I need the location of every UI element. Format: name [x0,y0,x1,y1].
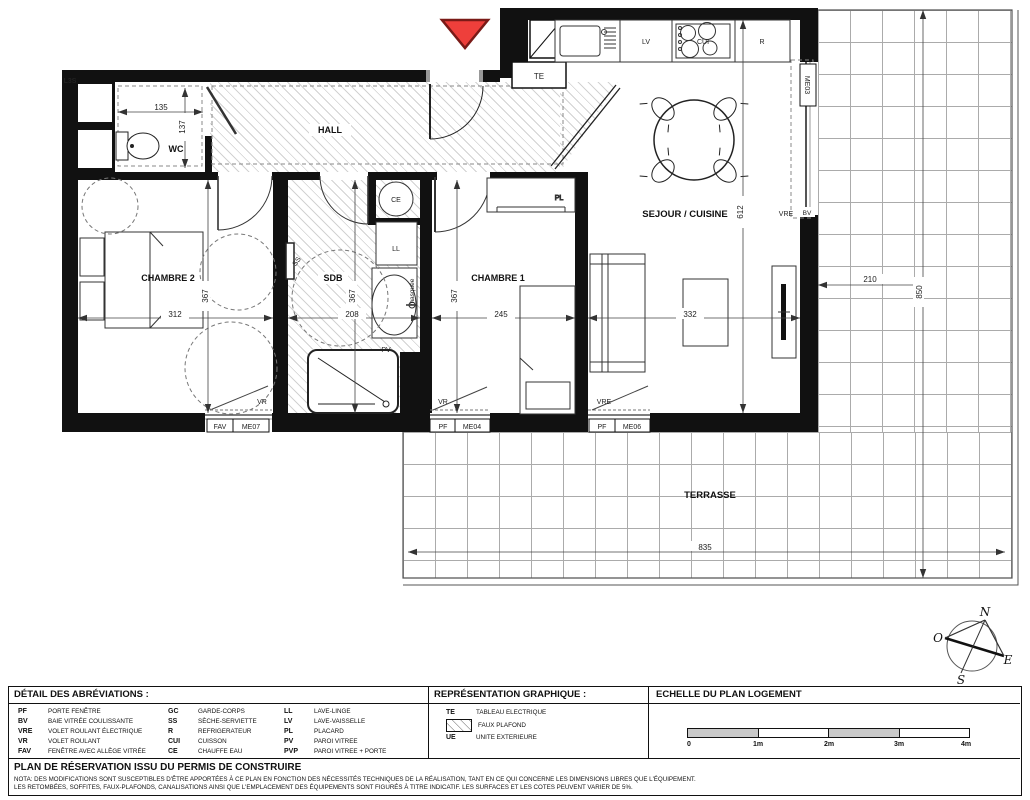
pl-label: PL [555,195,564,202]
abbrev-desc: GARDE-CORPS [198,708,245,715]
faux-plafond-swatch [446,719,472,732]
abbrev-code: LV [284,718,314,725]
ue-desc: UNITE EXTERIEURE [476,734,537,741]
interior-doors [207,87,490,232]
graphic-row-te: TETABLEAU ELECTRIQUE [446,707,546,718]
abbrev-desc: PAROI VITREE [314,738,358,745]
abbrev-title: DÉTAIL DES ABRÉVIATIONS : [14,689,149,700]
entrance-door [426,70,483,139]
abbrev-code: R [168,728,198,735]
te-label: TE [534,72,544,81]
dim-wc-height: 137 [178,120,187,134]
abbrev-row: SSSÈCHE-SERVIETTE [168,717,257,727]
faux-plafond-outlines [118,60,813,218]
dim-ch1-width: 245 [494,310,508,319]
scale-tick-3m: 3m [894,741,904,748]
abbrev-row: LLLAVE-LINGE [284,707,386,717]
abbrev-desc: VOLET ROULANT ÉLECTRIQUE [48,728,142,735]
w1-type: FAV [214,424,227,431]
abbrev-row: VREVOLET ROULANT ÉLECTRIQUE [18,727,146,737]
abbrev-code: CE [168,748,198,755]
abbrev-code: BV [18,718,48,725]
abbrev-desc: CUISSON [198,738,227,745]
chair [704,148,748,192]
abbrev-code: FAV [18,748,48,755]
abbrev-row: CUICUISSON [168,736,257,746]
compass-n: N [979,605,991,619]
te-abbr: TE [446,709,476,716]
scale-tick-1m: 1m [753,741,763,748]
abbrev-row: CECHAUFFE EAU [168,746,257,756]
abbrev-col1: PFPORTE FENÊTRE BVBAIE VITRÉE COULISSANT… [18,707,146,756]
abbrev-code: PF [18,708,48,715]
bay-vre-label: VRE [779,211,794,218]
scale-tick-0: 0 [687,741,691,748]
dining-table [640,88,749,191]
dim-sejour-height: 612 [736,205,745,219]
floor-plan-page: TE FAV ME07 VR [0,0,1030,800]
scale-bar [687,728,970,738]
abbrev-desc: PORTE FENÊTRE [48,708,101,715]
sejour-door [551,85,620,169]
graphic-row-fp: FAUX PLAFOND [446,718,546,732]
abbrev-code: GC [168,708,198,715]
abbrev-row: VRVOLET ROULANT [18,736,146,746]
dim-sdb-height: 367 [348,289,357,303]
w2-vr: VR [438,399,448,406]
abbrev-desc: LAVE-VAISSELLE [314,718,365,725]
abbrev-desc: CHAUFFE EAU [198,748,242,755]
dim-sdb-width: 208 [345,310,359,319]
abbrev-desc: LAVE-LINGE [314,708,351,715]
abbrev-code: VR [18,738,48,745]
w3-code: ME06 [623,424,641,431]
lv-label: LV [642,39,650,46]
chair [640,148,684,192]
bay-label: ME03 [803,76,810,94]
shower [308,350,398,413]
dim-ch2-width: 312 [168,310,182,319]
abbrev-code: VRE [18,728,48,735]
abbrev-row: PVPAROI VITREE [284,736,386,746]
ce-label: CE [391,197,401,204]
abbrev-row: RREFRIGERATEUR [168,727,257,737]
abbrev-row: PLPLACARD [284,727,386,737]
ll-label: LL [392,246,400,253]
graphic-items: TETABLEAU ELECTRIQUE FAUX PLAFOND UEUNIT… [446,707,546,743]
abbrev-desc: VOLET ROULANT [48,738,100,745]
sofa [590,254,645,372]
abbrev-row: FAVFENÊTRE AVEC ALLÈGE VITRÉE [18,746,146,756]
toilet [116,132,159,160]
dim-terrace-width: 835 [698,543,712,552]
scale-tick-4m: 4m [961,741,971,748]
tv-stand [772,266,796,358]
abbrev-row: LVLAVE-VAISSELLE [284,717,386,727]
abbrev-code: PL [284,728,314,735]
pv-label: PV [381,347,391,354]
window-pf-me04: PF ME04 VR [430,387,490,432]
entrance-marker-icon [442,20,488,48]
compass-e: E [1003,653,1013,667]
abbrev-code: CUI [168,738,198,745]
abbrev-desc: PLACARD [314,728,344,735]
chair [704,88,748,132]
legend-divider-bottom [8,758,1020,759]
dim-terrace-side-width: 210 [863,275,877,284]
walls [62,8,818,432]
compass-icon: N O E S [933,605,1013,686]
scale-segment [758,729,829,737]
abbrev-code: PVP [284,748,314,755]
w1-code: ME07 [242,424,260,431]
legend-vdivider-1 [428,686,429,758]
nota-line-2: LES RETOMBÉES, SOFFITES, FAUX-PLAFONDS, … [14,784,633,791]
masquee-label: masquée [409,278,416,305]
fp-desc: FAUX PLAFOND [478,722,526,729]
scale-segment [688,729,758,737]
electric-panel-box: TE [512,62,566,88]
chair [640,88,684,132]
abbrev-row: PFPORTE FENÊTRE [18,707,146,717]
chambre2-label: CHAMBRE 2 [141,273,195,283]
graphic-title: REPRÉSENTATION GRAPHIQUE : [434,689,586,700]
wardrobe-placard: PL [487,178,575,212]
bay-bv-label: BV [803,210,812,217]
corner-label: L3S [64,78,77,85]
legend-vdivider-2 [648,686,649,758]
sejour-label: SEJOUR / CUISINE [642,209,728,220]
scale-segment [828,729,899,737]
washing-machine: LL [376,222,417,265]
abbrev-desc: REFRIGERATEUR [198,728,251,735]
window-fav-me07: FAV ME07 VR [205,386,272,432]
bay-window-me03: ME03 VRE BV [779,62,818,218]
window-pf-me06: PF ME06 VRE [588,386,650,432]
dim-ch1-height: 367 [450,289,459,303]
sdb-label: SDB [323,273,343,283]
dim-terrace-side-height: 850 [915,285,924,299]
compass-s: S [957,673,965,686]
wc-label: WC [169,144,184,154]
abbrev-desc: FENÊTRE AVEC ALLÈGE VITRÉE [48,748,146,755]
scale-segment [899,729,970,737]
dim-ch2-height: 367 [201,289,210,303]
plan-drawing: TE FAV ME07 VR [0,0,1030,686]
ue-abbr: UE [446,734,476,741]
water-heater: CE [379,182,413,216]
abbrev-desc: BAIE VITRÉE COULISSANTE [48,718,133,725]
bed-chambre1 [520,286,575,414]
abbrev-col3: LLLAVE-LINGE LVLAVE-VAISSELLE PLPLACARD … [284,707,386,756]
dim-wc-width: 135 [154,103,168,112]
abbrev-desc: SÈCHE-SERVIETTE [198,718,257,725]
w3-type: PF [598,424,607,431]
abbrev-row: GCGARDE-CORPS [168,707,257,717]
w3-vr: VRE [597,399,612,406]
chambre1-label: CHAMBRE 1 [471,273,525,283]
abbrev-row: PVPPAROI VITREE + PORTE [284,746,386,756]
cui-label: CUI [697,39,709,46]
w2-code: ME04 [463,424,481,431]
w2-type: PF [439,424,448,431]
terrasse-label: TERRASSE [684,490,736,501]
abbrev-code: SS [168,718,198,725]
dim-sejour-width: 332 [683,310,697,319]
abbrev-code: LL [284,708,314,715]
kitchen-counter [555,20,790,62]
r-label: R [759,39,764,46]
hall-label: HALL [318,125,342,135]
abbrev-desc: PAROI VITREE + PORTE [314,748,386,755]
abbrev-code: PV [284,738,314,745]
graphic-row-ue: UEUNITE EXTERIEURE [446,732,546,743]
plan-title: PLAN DE RÉSERVATION ISSU DU PERMIS DE CO… [14,762,301,773]
scale-title: ECHELLE DU PLAN LOGEMENT [656,689,802,700]
compass-o: O [933,631,943,645]
te-desc: TABLEAU ELECTRIQUE [476,709,546,716]
nota-line-1: NOTA: DES MODIFICATIONS SONT SUSCEPTIBLE… [14,776,696,783]
legend-divider-top [8,703,1020,704]
abbrev-col2: GCGARDE-CORPS SSSÈCHE-SERVIETTE RREFRIGE… [168,707,257,756]
abbrev-row: BVBAIE VITRÉE COULISSANTE [18,717,146,727]
scale-tick-2m: 2m [824,741,834,748]
